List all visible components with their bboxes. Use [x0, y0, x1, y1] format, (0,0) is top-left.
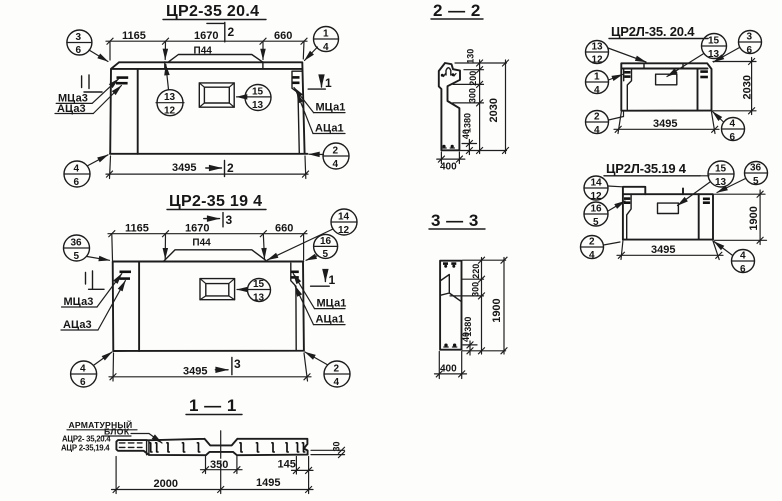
svg-text:МЦа1: МЦа1: [317, 298, 347, 310]
svg-text:4: 4: [333, 159, 339, 170]
svg-text:5: 5: [323, 249, 329, 260]
svg-text:13: 13: [164, 92, 176, 103]
svg-text:5: 5: [74, 251, 80, 262]
svg-text:12: 12: [338, 225, 350, 236]
svg-text:4: 4: [594, 85, 600, 96]
svg-text:4: 4: [740, 251, 746, 262]
svg-text:12: 12: [164, 106, 176, 117]
svg-text:2000: 2000: [154, 478, 178, 490]
svg-text:4: 4: [730, 119, 736, 130]
svg-text:АЦа1: АЦа1: [315, 123, 344, 135]
svg-text:220: 220: [471, 264, 481, 279]
svg-text:3495: 3495: [653, 118, 677, 130]
svg-text:1670: 1670: [194, 30, 218, 42]
svg-text:ЦР2Л-35.19 4: ЦР2Л-35.19 4: [606, 161, 687, 176]
svg-text:300: 300: [468, 88, 478, 103]
svg-text:2: 2: [594, 112, 600, 123]
svg-text:АЦР 2-35,19.4: АЦР 2-35,19.4: [61, 444, 110, 453]
svg-text:4: 4: [594, 125, 600, 136]
svg-text:4: 4: [80, 364, 86, 375]
svg-text:36: 36: [750, 163, 762, 174]
svg-text:13: 13: [715, 177, 727, 188]
svg-text:14: 14: [338, 212, 350, 223]
svg-text:16: 16: [320, 236, 332, 247]
svg-text:4: 4: [334, 377, 340, 388]
svg-text:15: 15: [715, 164, 727, 175]
svg-text:6: 6: [74, 177, 80, 188]
svg-text:13: 13: [708, 49, 720, 60]
svg-text:36: 36: [71, 238, 83, 249]
svg-text:300: 300: [470, 282, 480, 297]
svg-text:1165: 1165: [122, 30, 146, 42]
svg-text:1 — 1: 1 — 1: [189, 396, 237, 415]
svg-text:40: 40: [461, 332, 471, 342]
svg-text:1165: 1165: [125, 223, 149, 235]
svg-text:660: 660: [274, 30, 292, 42]
svg-text:1495: 1495: [256, 477, 280, 489]
svg-text:АЦР2- 35,20.4: АЦР2- 35,20.4: [62, 435, 111, 444]
svg-text:3 — 3: 3 — 3: [431, 211, 479, 230]
svg-text:3: 3: [747, 32, 753, 43]
svg-text:МЦа1: МЦа1: [316, 102, 346, 114]
svg-text:2: 2: [333, 146, 339, 157]
svg-text:200: 200: [468, 71, 478, 86]
svg-text:6: 6: [747, 45, 753, 56]
svg-text:16: 16: [591, 204, 603, 215]
svg-text:6: 6: [740, 264, 746, 275]
svg-text:П44: П44: [194, 46, 213, 57]
svg-text:145: 145: [278, 459, 296, 471]
svg-text:4: 4: [589, 250, 595, 261]
svg-text:400: 400: [440, 162, 457, 173]
svg-text:2: 2: [334, 364, 340, 375]
svg-text:2: 2: [227, 161, 234, 175]
svg-text:3495: 3495: [183, 366, 207, 378]
svg-text:12: 12: [591, 191, 603, 202]
svg-text:АЦа1: АЦа1: [316, 314, 345, 326]
svg-text:4: 4: [323, 42, 329, 53]
svg-text:МЦа3: МЦа3: [64, 296, 94, 308]
svg-text:ЦР2-35 20.4: ЦР2-35 20.4: [166, 3, 259, 20]
svg-text:40: 40: [461, 129, 471, 139]
svg-text:4: 4: [74, 164, 80, 175]
svg-text:ЦР2Л-35. 20.4: ЦР2Л-35. 20.4: [611, 24, 695, 39]
svg-text:660: 660: [275, 223, 293, 235]
svg-text:13: 13: [253, 293, 265, 304]
svg-text:350: 350: [210, 459, 228, 471]
svg-text:12: 12: [592, 55, 604, 66]
svg-text:400: 400: [440, 364, 457, 375]
svg-text:15: 15: [253, 279, 265, 290]
svg-text:П44: П44: [192, 238, 211, 249]
svg-text:1900: 1900: [748, 206, 760, 230]
svg-text:6: 6: [76, 45, 82, 56]
svg-text:1: 1: [325, 76, 332, 90]
svg-text:1: 1: [594, 72, 600, 83]
svg-text:130: 130: [465, 49, 475, 64]
svg-text:2: 2: [228, 25, 235, 39]
svg-text:5: 5: [753, 176, 759, 187]
svg-text:2030: 2030: [742, 75, 754, 99]
svg-text:2 — 2: 2 — 2: [433, 1, 481, 20]
svg-text:ЦР2-35 19 4: ЦР2-35 19 4: [169, 193, 262, 210]
svg-text:30: 30: [332, 441, 342, 451]
svg-text:1: 1: [329, 273, 336, 287]
svg-text:3495: 3495: [651, 244, 675, 256]
svg-text:14: 14: [591, 178, 603, 189]
svg-text:1: 1: [323, 29, 329, 40]
svg-text:6: 6: [730, 132, 736, 143]
svg-text:АЦа3: АЦа3: [63, 319, 92, 331]
svg-text:13: 13: [592, 42, 604, 53]
svg-text:13: 13: [252, 100, 264, 111]
svg-text:3: 3: [76, 32, 82, 43]
svg-text:2030: 2030: [488, 98, 500, 122]
svg-text:15: 15: [252, 87, 264, 98]
svg-text:5: 5: [593, 217, 599, 228]
svg-text:6: 6: [80, 377, 86, 388]
svg-text:2: 2: [589, 237, 595, 248]
svg-text:1670: 1670: [185, 223, 209, 235]
svg-text:1900: 1900: [491, 298, 503, 322]
svg-text:3495: 3495: [172, 162, 196, 174]
svg-text:15: 15: [708, 36, 720, 47]
svg-text:3: 3: [226, 213, 233, 227]
svg-text:3: 3: [234, 357, 241, 371]
